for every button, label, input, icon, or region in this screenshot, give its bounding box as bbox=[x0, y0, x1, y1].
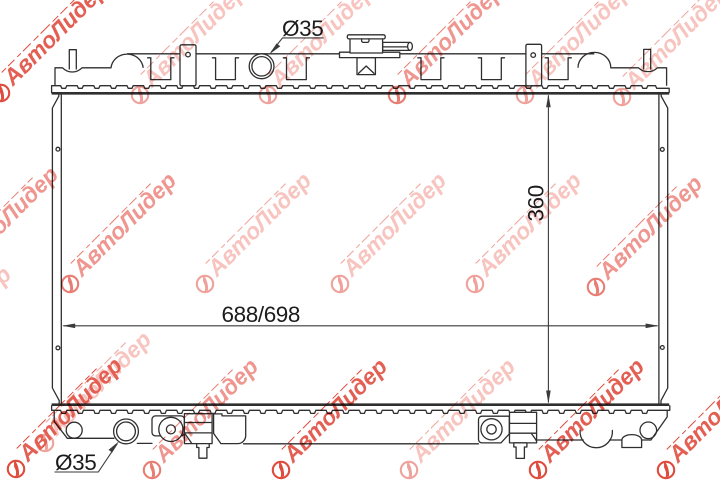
svg-text:688/698: 688/698 bbox=[222, 302, 301, 327]
svg-text:Ø35: Ø35 bbox=[55, 450, 96, 475]
